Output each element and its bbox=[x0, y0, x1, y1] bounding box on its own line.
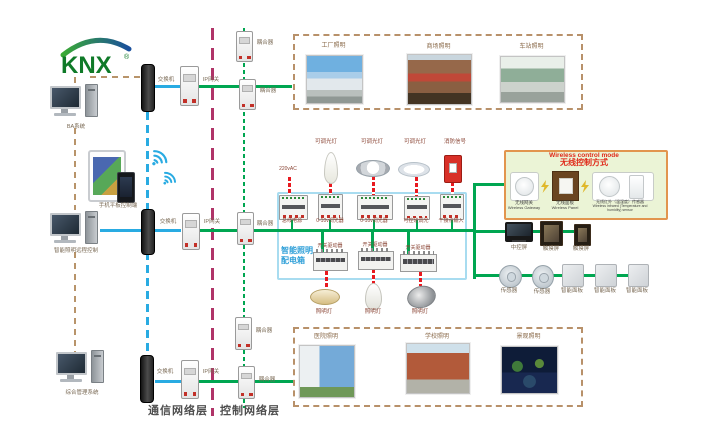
network-switch-device bbox=[141, 64, 155, 112]
factory-lighting-label: 工厂照明 bbox=[306, 43, 361, 50]
smart-panel-label: 智能面板 bbox=[554, 288, 590, 294]
monitor-icon bbox=[56, 352, 87, 375]
diagram-canvas: KNX ® BA系统 bbox=[0, 0, 715, 443]
pc-tower-icon bbox=[91, 350, 104, 383]
photo-hospital-lighting bbox=[299, 345, 355, 398]
dimmable-lamp-label: 可调光灯 bbox=[348, 139, 396, 145]
lamp-line bbox=[415, 177, 418, 196]
sensors-branch-a bbox=[476, 274, 501, 277]
lamp-line bbox=[325, 271, 328, 288]
photo-landscape-lighting bbox=[501, 346, 558, 394]
wireless-panel-en-label: Wireless Panel bbox=[544, 206, 586, 210]
coupler-label: 耦合器 bbox=[253, 40, 277, 46]
wireless-panel-icon bbox=[552, 171, 579, 201]
management-system-label: 综合管理系统 bbox=[50, 390, 114, 396]
monitor-icon bbox=[50, 213, 81, 236]
hospital-lighting-label: 医院照明 bbox=[299, 334, 353, 341]
scr-dimmer-device bbox=[404, 196, 430, 220]
comm-layer-label: 通信网络层 bbox=[148, 402, 208, 418]
smart-panel-icon bbox=[562, 264, 584, 287]
dry-contact-device bbox=[440, 194, 464, 220]
touch-screen-icon bbox=[574, 224, 591, 246]
switch2-gateway2-link bbox=[155, 229, 181, 232]
switch1-gateway1-link bbox=[155, 85, 181, 88]
dry-contact-label: 干接点输入 bbox=[429, 219, 473, 225]
touch-screen-icon bbox=[540, 221, 563, 246]
remote-control-label: 智能照明远程控制 bbox=[38, 248, 114, 254]
smart-panel-icon bbox=[628, 264, 649, 287]
phone-icon bbox=[117, 172, 135, 203]
photo-school-lighting bbox=[406, 343, 470, 394]
dimmer-0-10v-label: 0-10v调光器 bbox=[349, 219, 399, 225]
ip-gateway-label: IP网关 bbox=[199, 219, 225, 225]
lamp-line bbox=[372, 176, 375, 196]
pc-tower-icon bbox=[85, 211, 98, 244]
ba-system-computer bbox=[50, 84, 98, 124]
wireless-title-cn: 无线控制方式 bbox=[504, 159, 664, 168]
landscape-lighting-label: 景观照明 bbox=[501, 334, 556, 341]
switch-driver-device bbox=[358, 251, 394, 270]
ip-gateway-device bbox=[180, 66, 199, 106]
bus-power-device bbox=[279, 195, 308, 220]
coupler-label: 耦合器 bbox=[252, 328, 276, 334]
touch-screen-label: 触摸屏 bbox=[536, 246, 566, 252]
wireless-gateway-en-label: Wireless Gateway bbox=[500, 206, 548, 210]
switch-driver-device bbox=[313, 252, 348, 271]
dimmer-0-10v-label: 0-10v调光器 bbox=[305, 219, 355, 225]
dimmer-0-10v-device bbox=[357, 195, 393, 220]
central-screen-label: 中控屏 bbox=[503, 245, 535, 251]
photo-mall-lighting bbox=[407, 54, 472, 105]
dimmer-0-10v-device bbox=[318, 194, 343, 220]
ceiling-lamp-icon bbox=[310, 289, 340, 305]
fire-signal-label: 消防信号 bbox=[435, 139, 475, 145]
dimmable-lamp-label: 可调光灯 bbox=[302, 139, 350, 145]
ac-input-line bbox=[288, 177, 291, 196]
coupler-device bbox=[238, 366, 255, 399]
rf-signal-icon bbox=[579, 180, 591, 193]
wireless-branch bbox=[476, 183, 506, 186]
pc2-switch2-link bbox=[100, 229, 142, 232]
coupler-device bbox=[237, 212, 254, 245]
smart-panel-label: 智能面板 bbox=[587, 288, 623, 294]
touch-screen-label: 触摸屏 bbox=[566, 246, 596, 252]
knx-logo-reg: ® bbox=[124, 53, 130, 61]
ip-gateway-label: IP网关 bbox=[198, 77, 224, 83]
sensor-label: 传感器 bbox=[493, 288, 525, 294]
coupler-label: 耦合器 bbox=[256, 88, 280, 94]
rf-signal-icon bbox=[539, 180, 551, 193]
dimmable-panel-light-icon bbox=[398, 162, 430, 177]
knx-logo: KNX ® bbox=[56, 34, 136, 78]
ip-gateway-device bbox=[182, 213, 200, 250]
mobile-control-label: 手机平板控制端 bbox=[86, 203, 150, 209]
central-screen-icon bbox=[505, 222, 533, 242]
ip-gateway-device bbox=[181, 360, 199, 399]
dimmable-lamp-icon bbox=[324, 152, 338, 184]
ac-input-label: 220vAC bbox=[266, 167, 310, 173]
lamp-line bbox=[419, 272, 422, 286]
dimmable-downlight-icon bbox=[356, 160, 390, 177]
wireless-sensor-en-label: Wireless infrared (Temperature and humid… bbox=[585, 205, 655, 213]
coupler-label: 耦合器 bbox=[255, 377, 279, 383]
sensor-icon bbox=[499, 265, 522, 288]
bulb-lamp-icon bbox=[365, 283, 382, 310]
lamp-label: 照明灯 bbox=[306, 309, 342, 315]
wireless-sensor-icon bbox=[592, 172, 654, 201]
knx-logo-text: KNX bbox=[61, 52, 112, 78]
network-switch-device bbox=[141, 209, 155, 255]
dimmable-lamp-label: 可调光灯 bbox=[393, 139, 437, 145]
mobile-tablet-group bbox=[88, 150, 148, 206]
left-bus-line-b bbox=[74, 128, 76, 210]
switch-label: 交换机 bbox=[156, 219, 180, 225]
wireless-gateway-icon bbox=[510, 172, 539, 201]
fire-alarm-icon bbox=[444, 155, 462, 183]
mall-lighting-label: 商场照明 bbox=[407, 44, 470, 51]
cabinet-name-line2: 配电箱 bbox=[281, 256, 313, 266]
lamp-line bbox=[372, 269, 375, 284]
station-lighting-label: 车站照明 bbox=[500, 44, 563, 51]
coupler-device bbox=[236, 31, 253, 62]
ip-gateway-label: IP网关 bbox=[198, 369, 224, 375]
photo-factory-lighting bbox=[306, 55, 363, 104]
monitor-icon bbox=[50, 86, 81, 109]
remote-control-computer bbox=[50, 211, 98, 251]
ethernet-line-b bbox=[146, 252, 149, 356]
sensor-icon bbox=[532, 265, 554, 289]
switch-label: 交换机 bbox=[153, 369, 177, 375]
switch-driver-device bbox=[400, 254, 437, 272]
switch-label: 交换机 bbox=[154, 77, 178, 83]
lamp-label: 照明灯 bbox=[402, 309, 438, 315]
spot-lamp-icon bbox=[405, 283, 438, 311]
pc-tower-icon bbox=[85, 84, 98, 117]
coupler-device bbox=[235, 317, 252, 350]
school-lighting-label: 学校照明 bbox=[406, 334, 468, 341]
network-switch-device bbox=[140, 355, 154, 403]
photo-station-lighting bbox=[500, 56, 565, 103]
coupler-device bbox=[239, 79, 256, 110]
smart-panel-icon bbox=[595, 264, 617, 287]
management-system-computer bbox=[56, 350, 104, 390]
ba-link-line bbox=[90, 76, 142, 78]
ctrl-layer-label: 控制网络层 bbox=[220, 402, 280, 418]
lamp-label: 照明灯 bbox=[357, 309, 389, 315]
left-bus-line-c bbox=[74, 252, 76, 352]
ba-system-label: BA系统 bbox=[44, 124, 108, 130]
switch3-gateway3-link bbox=[155, 380, 181, 383]
smart-panel-label: 智能面板 bbox=[619, 288, 655, 294]
